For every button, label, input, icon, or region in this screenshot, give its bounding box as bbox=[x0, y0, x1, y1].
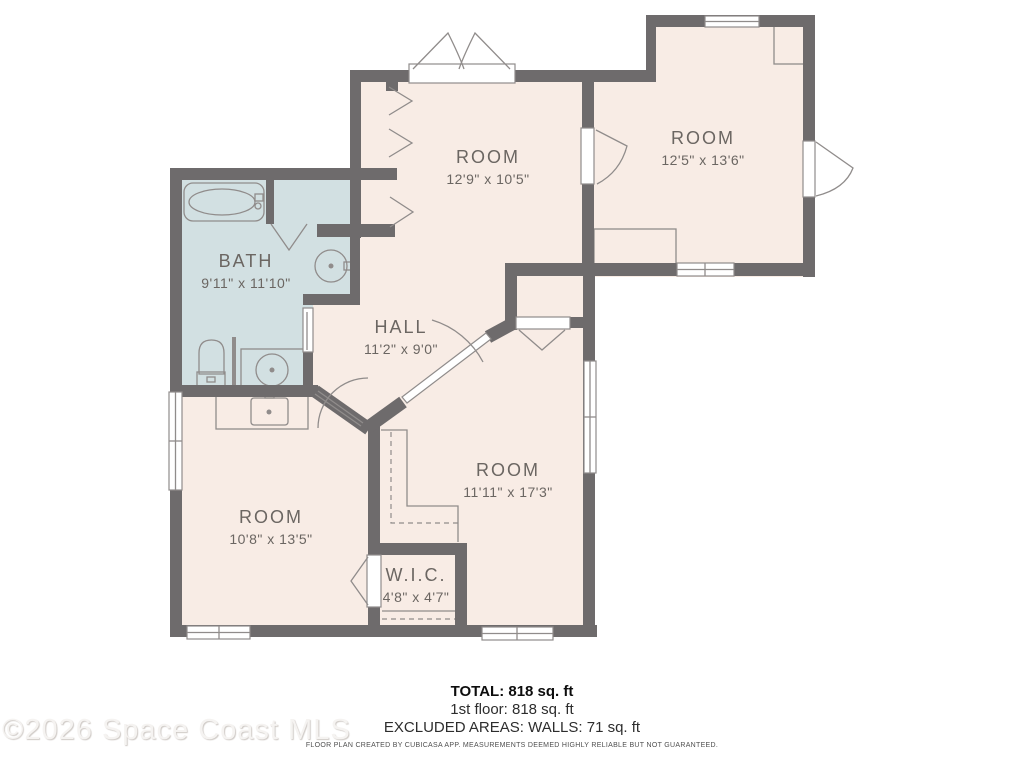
room-name: ROOM bbox=[229, 507, 312, 527]
room-dimensions: 10'8" x 13'5" bbox=[229, 530, 312, 548]
window bbox=[677, 263, 734, 276]
shower-partition bbox=[232, 337, 236, 389]
room-dimensions: 12'9" x 10'5" bbox=[446, 170, 529, 188]
room-dimensions: 4'8" x 4'7" bbox=[383, 588, 450, 606]
room-dimensions: 11'2" x 9'0" bbox=[364, 340, 438, 358]
room-label-hall: HALL 11'2" x 9'0" bbox=[364, 317, 438, 358]
window bbox=[705, 16, 759, 27]
room-name: ROOM bbox=[661, 128, 744, 148]
window bbox=[187, 626, 250, 639]
window bbox=[169, 392, 182, 490]
room-name: ROOM bbox=[463, 460, 553, 480]
room-dimensions: 9'11" x 11'10" bbox=[201, 274, 291, 292]
room-label-bottom-left: ROOM 10'8" x 13'5" bbox=[229, 507, 312, 548]
window bbox=[482, 627, 553, 640]
room-label-bath: BATH 9'11" x 11'10" bbox=[201, 251, 291, 292]
room-label-top-middle: ROOM 12'9" x 10'5" bbox=[446, 147, 529, 188]
room-label-top-right: ROOM 12'5" x 13'6" bbox=[661, 128, 744, 169]
room-name: ROOM bbox=[446, 147, 529, 167]
room-name: W.I.C. bbox=[383, 565, 450, 585]
floorplan-canvas: ROOM 12'9" x 10'5" ROOM 12'5" x 13'6" BA… bbox=[0, 0, 1024, 768]
room-label-wic: W.I.C. 4'8" x 4'7" bbox=[383, 565, 450, 606]
total-area: TOTAL: 818 sq. ft bbox=[0, 683, 1024, 701]
door bbox=[803, 141, 853, 197]
room-name: HALL bbox=[364, 317, 438, 337]
mls-watermark: ©2026 Space Coast MLS bbox=[2, 714, 351, 747]
floorplan-drawing bbox=[0, 0, 1024, 768]
room-label-middle-right: ROOM 11'11" x 17'3" bbox=[463, 460, 553, 501]
window bbox=[584, 361, 596, 473]
room-dimensions: 11'11" x 17'3" bbox=[463, 483, 553, 501]
double-door bbox=[409, 33, 515, 83]
room-dimensions: 12'5" x 13'6" bbox=[661, 151, 744, 169]
door bbox=[303, 308, 313, 352]
room-name: BATH bbox=[201, 251, 291, 271]
